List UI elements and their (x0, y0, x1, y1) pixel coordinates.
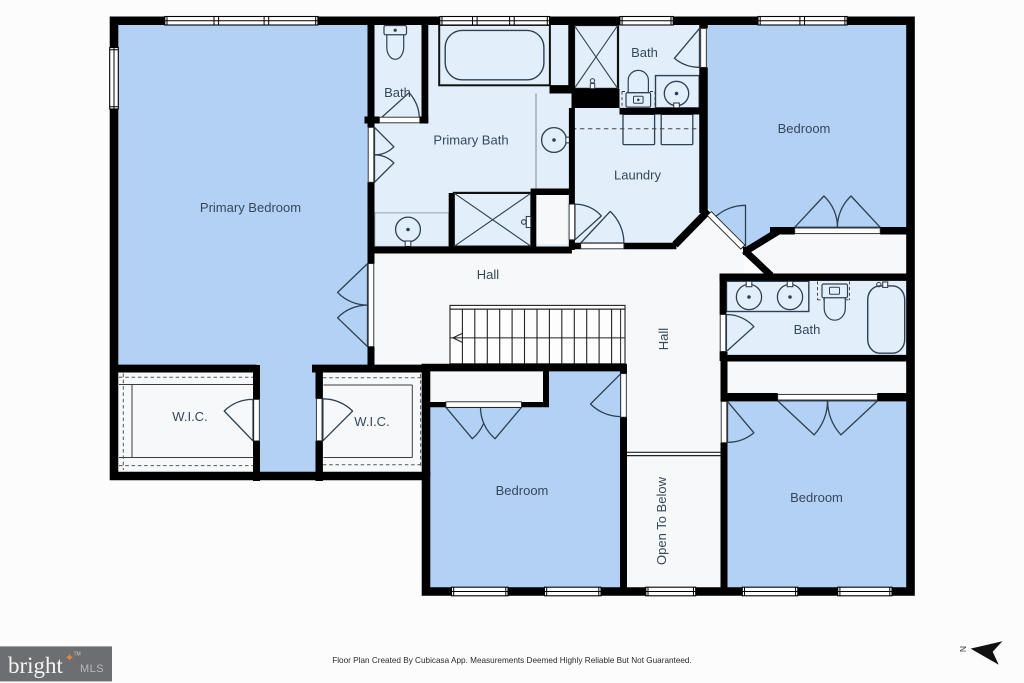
svg-text:W.I.C.: W.I.C. (354, 414, 389, 429)
svg-text:Bath: Bath (794, 322, 821, 337)
svg-text:Bath: Bath (384, 85, 411, 100)
svg-text:Primary Bath: Primary Bath (433, 133, 508, 148)
svg-text:N: N (958, 646, 968, 652)
svg-text:Bedroom: Bedroom (790, 490, 843, 505)
svg-text:Laundry: Laundry (614, 167, 661, 182)
svg-text:Open To Below: Open To Below (654, 476, 669, 565)
svg-text:Bedroom: Bedroom (778, 121, 831, 136)
svg-text:Hall: Hall (477, 267, 500, 282)
svg-text:Floor Plan Created By Cubicasa: Floor Plan Created By Cubicasa App. Meas… (332, 656, 692, 665)
svg-text:Primary Bedroom: Primary Bedroom (200, 200, 301, 215)
svg-text:bright: bright (8, 653, 64, 678)
svg-text:Bath: Bath (631, 45, 658, 60)
svg-text:W.I.C.: W.I.C. (172, 409, 207, 424)
svg-text:TM: TM (74, 652, 81, 658)
svg-text:Hall: Hall (656, 328, 671, 351)
svg-text:Bedroom: Bedroom (496, 483, 549, 498)
svg-text:MLS: MLS (80, 663, 104, 675)
